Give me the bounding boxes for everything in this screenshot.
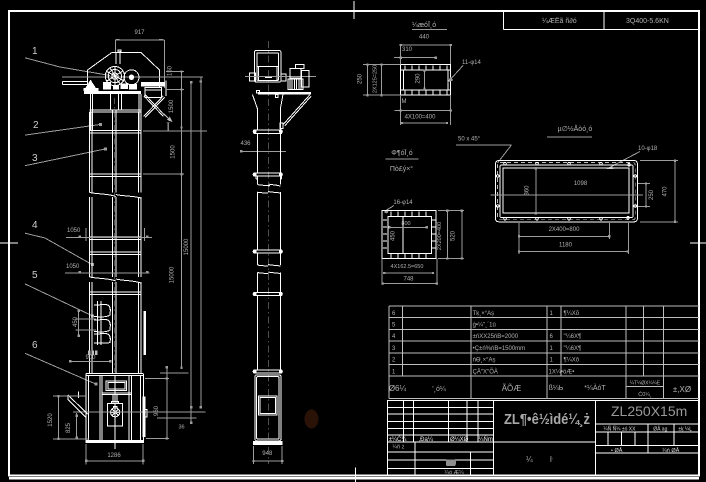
svg-text:917: 917 [134,30,145,36]
svg-text:800: 800 [401,221,410,227]
svg-text:¼ö Æ¼: ¼ö Æ¼ [445,470,465,476]
svg-text:1286: 1286 [107,453,121,459]
svg-text:4X162.5=650: 4X162.5=650 [391,264,424,270]
svg-text:150: 150 [168,65,174,76]
svg-text:'¸ó¼: '¸ó¼ [432,386,446,393]
svg-text:436: 436 [241,141,252,147]
svg-text:¼ñ ż: ¼ñ ż [392,445,404,451]
svg-text:36: 36 [179,425,185,431]
svg-text:1520: 1520 [48,413,54,427]
svg-text:¼æóĪ¸ó: ¼æóĪ¸ó [412,21,436,29]
svg-text:960: 960 [154,405,160,416]
svg-text:Πò£ý×°: Πò£ý×° [390,165,413,173]
svg-text:15000: 15000 [170,266,176,283]
svg-text:¼: ¼ [526,455,533,464]
svg-text:Ć0¼¸: Ć0¼¸ [638,391,652,398]
svg-text:I: I [166,119,170,134]
svg-text:948: 948 [262,451,273,457]
svg-text:Ø6¼: Ø6¼ [389,384,407,393]
svg-text:¼Ńm: ¼Ńm [479,436,493,443]
svg-text:3Q400-5.6KN: 3Q400-5.6KN [626,18,669,25]
svg-text:250: 250 [649,189,655,200]
svg-text:1500: 1500 [169,99,175,113]
svg-text:825: 825 [66,422,72,433]
svg-text:ÇĀ"X"ÕÀ: ÇĀ"X"ÕÀ [473,368,498,375]
svg-text:ß¼Ь: ß¼Ь [549,385,564,392]
svg-text:ńƟ¸×°Aș: ńƟ¸×°Aș [473,358,496,364]
svg-text:•Ç±ń%ńB=1500mm: •Ç±ń%ńB=1500mm [473,346,526,352]
svg-text:1050: 1050 [67,228,81,234]
svg-text:1X¼•óÆ•: 1X¼•óÆ• [549,369,575,375]
svg-text:ØÅ ag: ØÅ ag [653,426,667,433]
svg-text:900: 900 [85,355,96,361]
svg-text:50 x 45°: 50 x 45° [458,137,481,143]
svg-text:250: 250 [358,73,364,84]
svg-text:ZL¶•ê½ìdé¼¸ż: ZL¶•ê½ìdé¼¸ż [504,411,590,428]
svg-text:¼ń ØÅ: ¼ń ØÅ [662,447,679,454]
svg-text:15000: 15000 [184,238,190,255]
svg-text:Tķ¸×°Aș: Tķ¸×°Aș [473,311,495,317]
svg-text:1180: 1180 [559,243,573,249]
svg-text:11-φ14: 11-φ14 [462,60,481,66]
svg-text:520: 520 [451,230,457,241]
svg-text:5: 5 [32,270,38,281]
svg-text:2: 2 [33,120,39,131]
svg-text:4X100=400: 4X100=400 [405,115,437,121]
svg-text:2X200=400: 2X200=400 [437,222,443,250]
svg-text:2X400=800: 2X400=800 [549,227,581,233]
svg-text:ģ•¼"¸´1ū: ģ•¼"¸´1ū [473,322,496,329]
svg-text:1: 1 [32,46,38,57]
svg-text:310: 310 [402,47,413,53]
svg-text:10-φ18: 10-φ18 [638,146,658,152]
svg-text:"¼6X¶: "¼6X¶ [564,346,582,352]
svg-text:±,XØ: ±,XØ [673,385,691,394]
svg-text:1500: 1500 [171,145,177,159]
svg-text:¼Ñ Ñ¼ ±ó XX: ¼Ñ Ñ¼ ±ó XX [604,426,637,433]
svg-text:2X125=250: 2X125=250 [373,65,379,93]
svg-text:µ∅½Åòó¸ó: µ∅½Åòó¸ó [558,124,593,133]
svg-text:ZL250X15m: ZL250X15m [611,403,687,419]
svg-text:1050: 1050 [66,264,80,270]
svg-text:±ńXX25ńB=2000: ±ńXX25ńB=2000 [473,334,519,340]
svg-text:*¼ÀóT: *¼ÀóT [584,383,606,392]
svg-text:16-φ14: 16-φ14 [393,200,413,206]
svg-text:M: M [402,99,407,105]
svg-text:4: 4 [32,220,38,231]
svg-text:3: 3 [32,153,38,164]
svg-text:440: 440 [419,35,430,41]
svg-text:"¼6X¶: "¼6X¶ [564,334,582,340]
svg-text:¼ÆËã ñ∂ó: ¼ÆËã ñ∂ó [542,17,577,25]
svg-text:±¼Ć¼: ±¼Ć¼ [389,436,408,443]
svg-text:¶¼Xõ: ¶¼Xõ [564,358,580,364]
svg-text:748: 748 [403,277,414,283]
svg-text:¼T¼ØX¼¼E: ¼T¼ØX¼¼E [630,381,661,387]
svg-text:1098: 1098 [574,181,588,187]
svg-text:±ķ ¼Ļ: ±ķ ¼Ļ [678,427,692,433]
svg-text:290: 290 [416,73,422,84]
svg-text:360: 360 [525,185,531,196]
svg-text:6: 6 [32,340,38,351]
svg-text:,Đą¼: ,Đą¼ [419,437,434,443]
svg-text:Ø¼XØ: Ø¼XØ [450,437,469,443]
svg-text:450: 450 [391,230,397,241]
svg-text:450: 450 [73,316,79,327]
svg-text:¶¼Xõ: ¶¼Xõ [564,311,580,317]
svg-text:Φ¶óĪ¸ó: Φ¶óĪ¸ó [391,149,413,157]
svg-text:ÃÕÆ: ÃÕÆ [502,384,522,393]
svg-text:470: 470 [663,186,669,197]
svg-text:• ØÅ: • ØÅ [611,447,623,454]
svg-text:ŀ: ŀ [550,455,553,464]
